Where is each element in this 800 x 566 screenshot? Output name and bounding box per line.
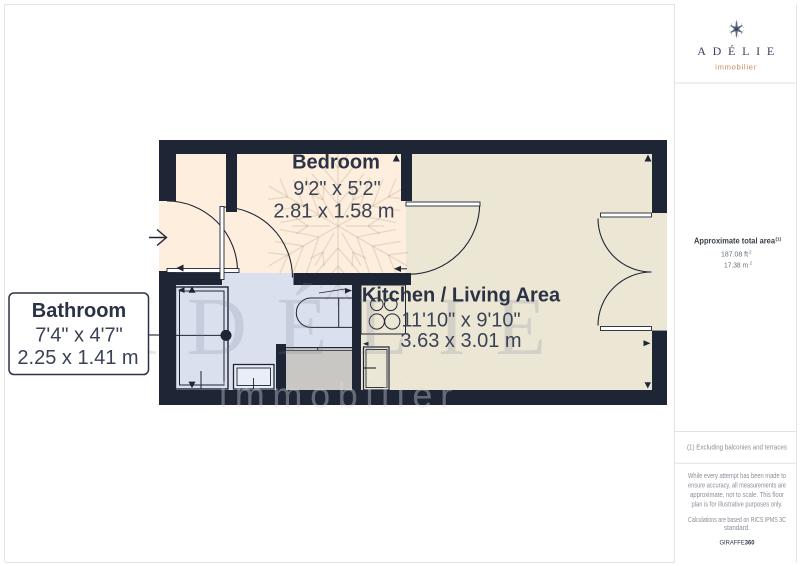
svg-text:(1): (1) — [776, 237, 782, 242]
svg-text:immobilier: immobilier — [715, 62, 757, 71]
svg-text:ADÉLIE: ADÉLIE — [697, 44, 774, 58]
svg-text:Approximate total area: Approximate total area — [694, 236, 775, 245]
svg-text:plan is for illustrative purpo: plan is for illustrative purposes only. — [692, 499, 783, 508]
svg-text:2: 2 — [750, 261, 753, 266]
svg-text:2: 2 — [749, 250, 752, 255]
svg-text:17.38 m: 17.38 m — [724, 261, 748, 270]
svg-text:(1) Excluding balconies and te: (1) Excluding balconies and terraces — [687, 443, 787, 452]
svg-text:187.08 ft: 187.08 ft — [721, 249, 748, 258]
svg-text:approximate, not to scale. Thi: approximate, not to scale. This floor — [690, 490, 784, 499]
svg-text:GIRAFFE360: GIRAFFE360 — [720, 540, 755, 547]
svg-text:While every attempt has been m: While every attempt has been made to — [688, 471, 786, 480]
svg-text:standard.: standard. — [724, 523, 750, 532]
svg-text:ensure accuracy, all measureme: ensure accuracy, all measurements are — [688, 480, 786, 489]
